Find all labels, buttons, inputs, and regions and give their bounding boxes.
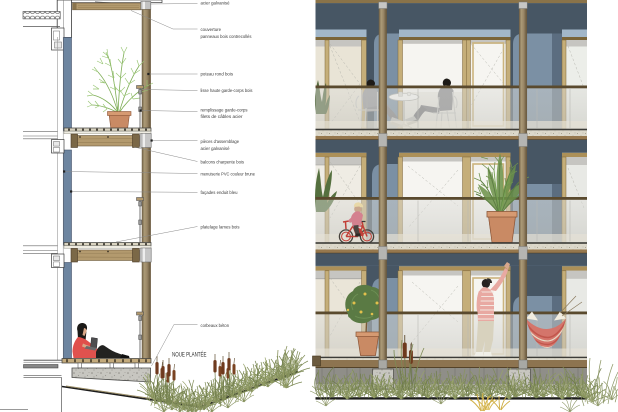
svg-text:filets de câbles acier: filets de câbles acier: [201, 114, 243, 120]
svg-text:façades enduit bleu: façades enduit bleu: [201, 190, 238, 196]
svg-text:platelage lames bois: platelage lames bois: [201, 224, 240, 230]
svg-text:balcons charpente bois: balcons charpente bois: [201, 159, 245, 165]
svg-text:pièces d'assemblage: pièces d'assemblage: [201, 139, 240, 145]
svg-text:remplissage garde-corps: remplissage garde-corps: [201, 107, 248, 113]
svg-text:panneaux bois contrecollés: panneaux bois contrecollés: [201, 34, 252, 40]
svg-text:menuiserie PVC couleur brune: menuiserie PVC couleur brune: [201, 171, 256, 177]
svg-text:poteau rond bois: poteau rond bois: [201, 72, 234, 78]
svg-text:NOUE PLANTÉE: NOUE PLANTÉE: [172, 350, 207, 359]
svg-text:couverture: couverture: [201, 27, 222, 33]
svg-text:lisse haute garde-corps bois: lisse haute garde-corps bois: [201, 88, 253, 94]
svg-text:corbeaux béton: corbeaux béton: [201, 323, 230, 329]
svg-text:acier galvanisé: acier galvanisé: [201, 146, 230, 152]
svg-text:acier galvanisé: acier galvanisé: [201, 1, 230, 7]
